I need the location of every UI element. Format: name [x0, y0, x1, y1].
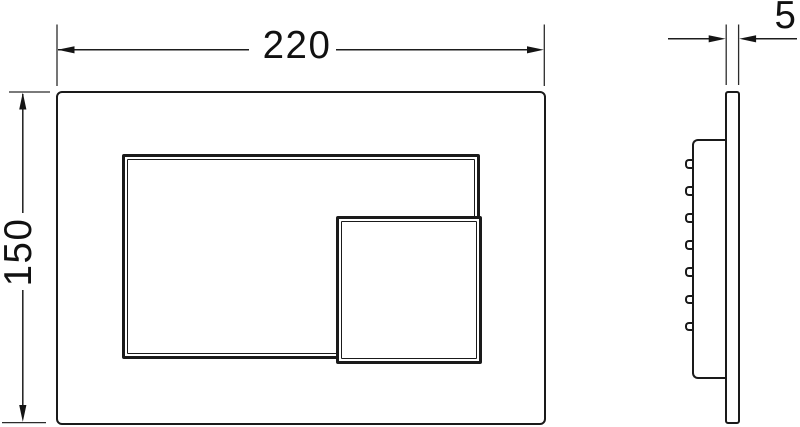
thickness-dimension-label: 5 [775, 0, 798, 35]
width-dimension-label: 220 [263, 27, 332, 66]
mounting-bracket [692, 139, 730, 379]
small-flush-button [336, 216, 482, 364]
height-dimension-label: 150 [0, 218, 38, 287]
plate-profile [725, 91, 740, 425]
technical-drawing: 220 150 5 [0, 0, 800, 427]
small-flush-button-inner-line [341, 221, 477, 359]
